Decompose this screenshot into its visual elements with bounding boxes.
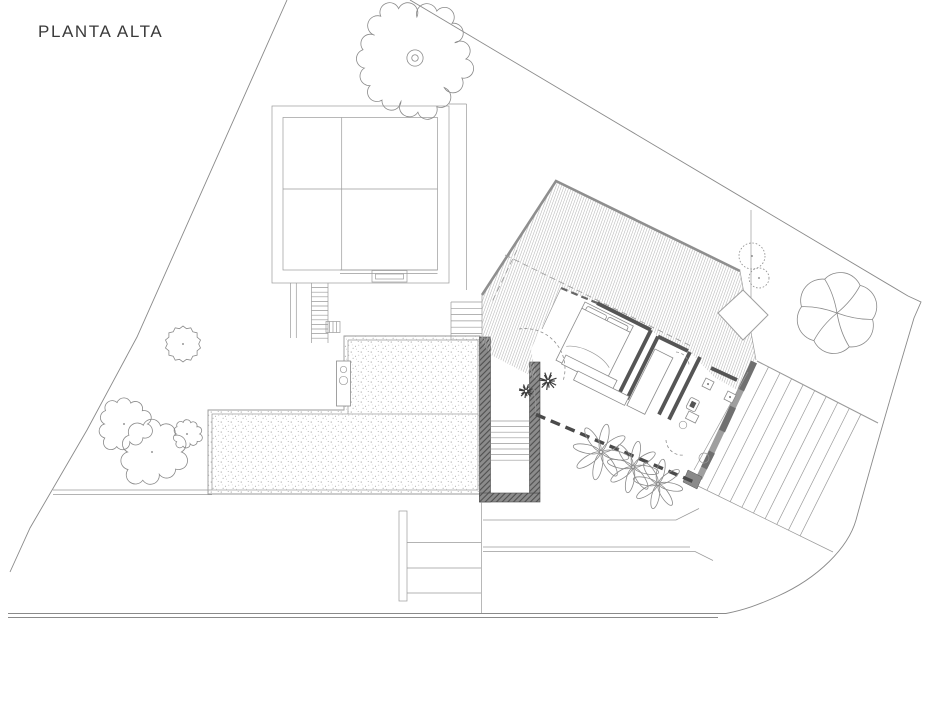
bidet: [685, 411, 698, 423]
step-side-rail: [399, 511, 407, 601]
retaining-wall: [53, 490, 212, 495]
tree-trunk-dot: [412, 55, 418, 61]
palm-leaf: [654, 459, 667, 484]
palm-leaf: [649, 484, 662, 509]
property-boundary: [8, 0, 921, 618]
round-tree: [99, 398, 152, 450]
side-steps: [451, 302, 482, 340]
palm-leaf: [607, 458, 633, 471]
palm-leaf: [655, 483, 675, 507]
toilet: [686, 397, 700, 412]
roof-vent: [372, 271, 407, 283]
tree-trunk-ring: [407, 50, 423, 66]
building-lower-walls: [291, 283, 297, 338]
roof-vent-inner: [376, 274, 404, 279]
terraces: [208, 336, 480, 494]
tree-center-dot: [182, 343, 184, 345]
building-room-dividers: [283, 118, 438, 274]
boundary-right-curve: [726, 296, 921, 614]
wide-step-edges: [407, 502, 482, 613]
palm-leaf: [582, 426, 604, 453]
stair-wall-left: [480, 337, 491, 502]
terrace-gravel-surface: [208, 336, 480, 494]
bath-fixture-square: [702, 378, 714, 390]
palm-leaf: [658, 480, 683, 493]
neighbor-building: [272, 104, 482, 343]
dark-shrub: [539, 372, 557, 390]
floor-plan-page: PLANTA ALTA: [0, 0, 950, 701]
floor-plan-drawing: [0, 0, 950, 701]
palm-leaf: [633, 475, 658, 488]
palm-leaf: [572, 442, 600, 456]
garden-steps: [399, 502, 482, 613]
tree-center-dot: [151, 451, 153, 453]
round-tree: [121, 419, 188, 484]
bush-center-dot: [758, 277, 760, 279]
palm-leaf: [635, 481, 659, 501]
tree-center-dot: [123, 423, 125, 425]
building-side-ledge: [449, 104, 467, 290]
slope-bottom-edge: [698, 486, 833, 552]
stair-wall-right: [530, 362, 541, 493]
palm-leaf: [591, 452, 605, 480]
outdoor-sink-unit: [337, 361, 351, 406]
lower-deck-outline: [483, 509, 713, 561]
palm-leaf: [575, 449, 602, 471]
slope-stripe-lines: [693, 367, 862, 565]
small-step-treads: [330, 322, 337, 333]
palm-leaf: [624, 467, 637, 493]
palm-leaf: [600, 433, 627, 455]
tree-center-dot: [186, 433, 188, 435]
round-tree: [173, 420, 202, 448]
round-stool: [679, 421, 687, 429]
stair-treads: [491, 421, 530, 460]
pinwheel-tree: [797, 273, 877, 354]
building-inner-wall: [283, 118, 438, 271]
bush-center-dot: [751, 255, 753, 257]
stair-wall-bottom: [480, 493, 541, 502]
boundary-bottom-line: [8, 614, 726, 618]
building-outer-wall: [272, 106, 449, 283]
roof-deck: [482, 181, 756, 390]
ladder-stair: [312, 283, 329, 343]
